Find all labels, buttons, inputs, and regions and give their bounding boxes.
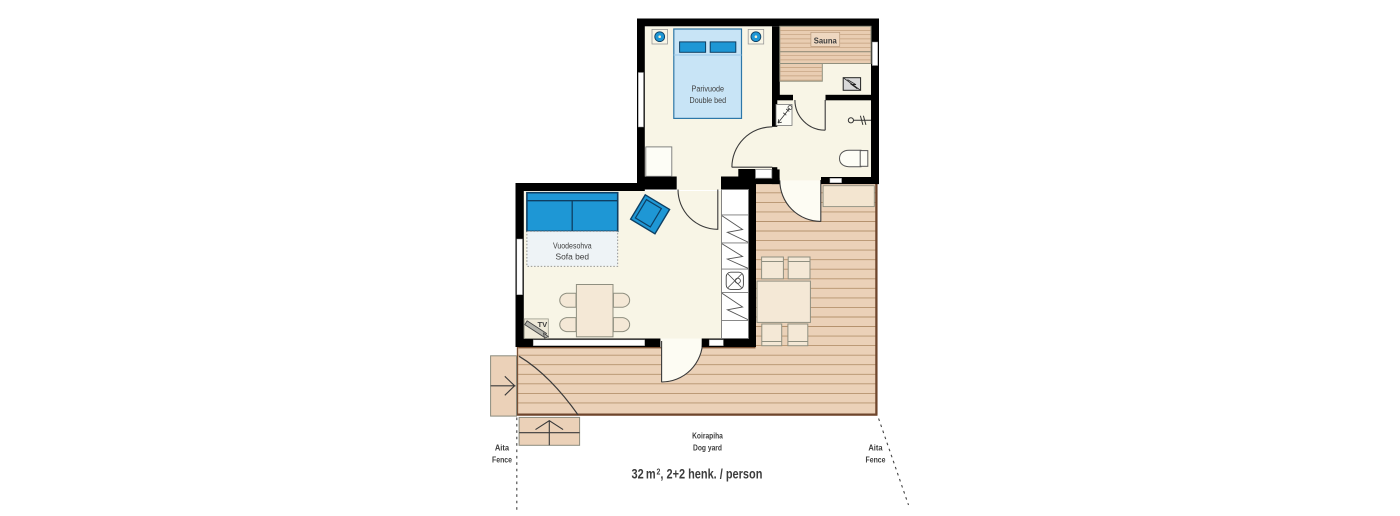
svg-text:Sofa bed: Sofa bed — [556, 252, 590, 262]
svg-text:Aita: Aita — [495, 443, 509, 453]
svg-text:Aita: Aita — [868, 443, 882, 453]
svg-text:Koirapiha: Koirapiha — [692, 431, 723, 441]
svg-text:32 m 2, 2+2 henk. / person: 32 m 2, 2+2 henk. / person — [632, 466, 763, 481]
svg-text:Fence: Fence — [866, 455, 886, 465]
svg-text:Double bed: Double bed — [690, 95, 727, 105]
svg-text:Fence: Fence — [492, 455, 512, 465]
svg-text:Vuodesohva: Vuodesohva — [553, 240, 592, 250]
svg-text:Parivuode: Parivuode — [692, 84, 725, 94]
svg-text:Dog yard: Dog yard — [693, 443, 722, 453]
svg-text:Sauna: Sauna — [814, 36, 837, 45]
svg-text:TV: TV — [537, 320, 548, 329]
